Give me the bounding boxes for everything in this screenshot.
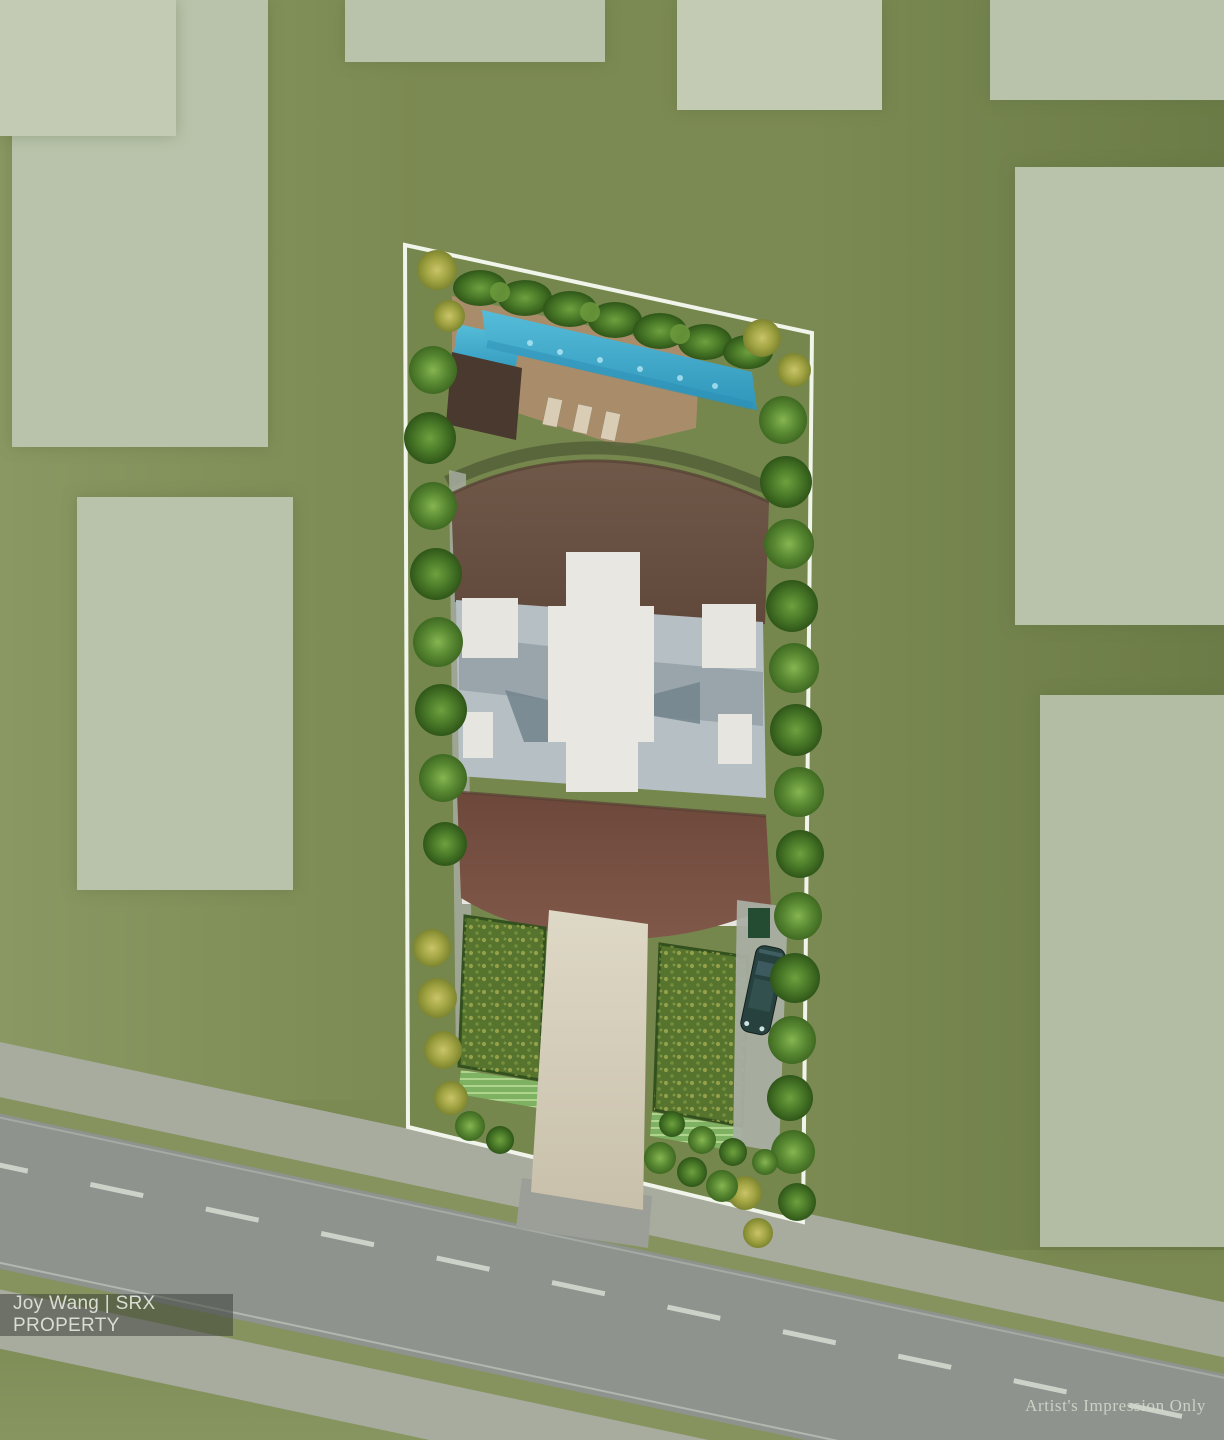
garden-bed-left	[459, 916, 545, 1080]
neighbor-plot-top-right-corner	[990, 0, 1224, 100]
water-feature	[748, 908, 770, 938]
neighbor-plot-right-top	[1015, 167, 1224, 625]
site-plan-rendering: Joy Wang | SRX PROPERTY Artist's Impress…	[0, 0, 1224, 1440]
entrance-driveway	[531, 910, 648, 1210]
neighbor-plot-right-bottom	[1040, 695, 1224, 1247]
disclaimer-text: Artist's Impression Only	[1025, 1396, 1206, 1416]
watermark-badge: Joy Wang | SRX PROPERTY	[0, 1294, 233, 1336]
neighbor-plot-top-left-corner	[0, 0, 176, 136]
neighbor-plot-top-b	[677, 0, 882, 110]
neighbor-plot-left-bottom	[77, 497, 293, 890]
watermark-text: Joy Wang | SRX PROPERTY	[13, 1293, 233, 1337]
neighbor-plot-top-a	[345, 0, 605, 62]
development-site	[380, 230, 870, 1270]
